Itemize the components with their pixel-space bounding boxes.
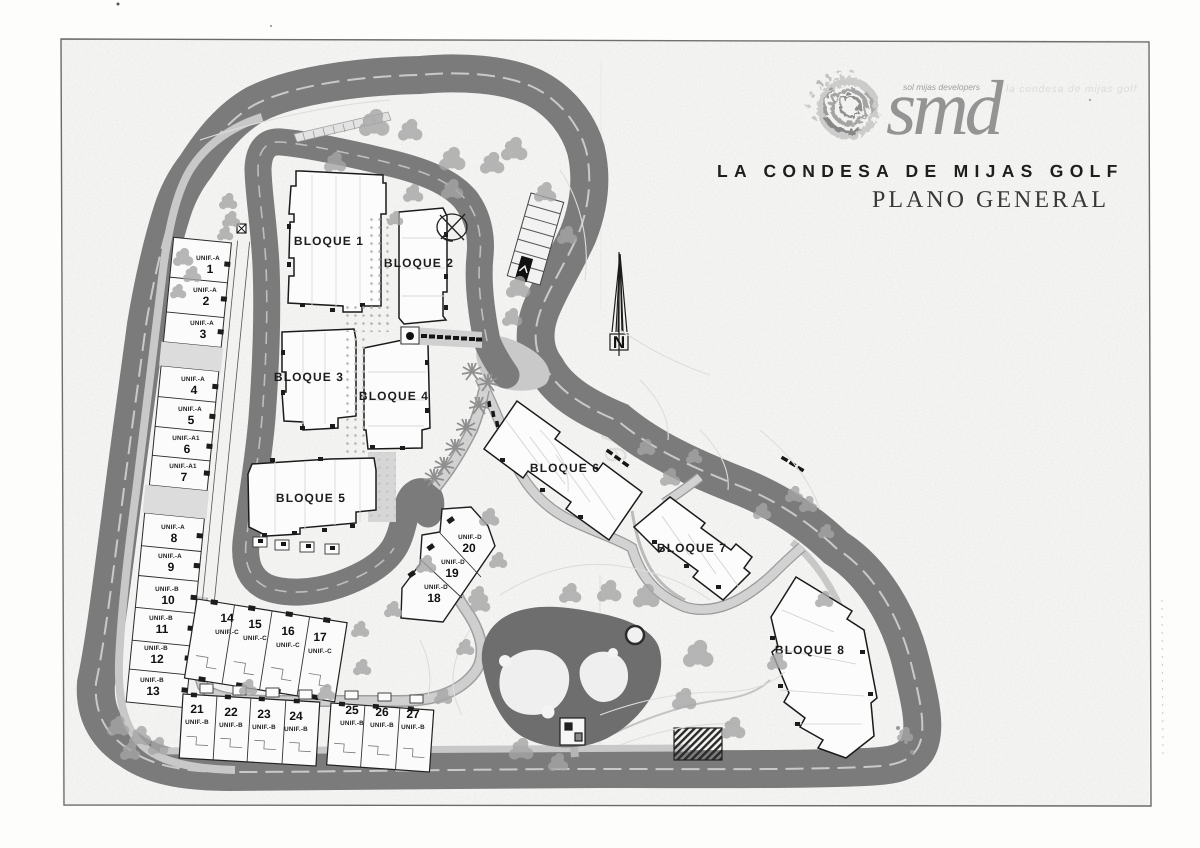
- svg-text:11: 11: [156, 622, 169, 636]
- svg-text:UNIF.-B: UNIF.-B: [144, 645, 168, 652]
- svg-text:UNIF.-D: UNIF.-D: [424, 584, 448, 591]
- svg-text:UNIF.-B: UNIF.-B: [155, 586, 179, 593]
- svg-text:UNIF.-A1: UNIF.-A1: [172, 435, 200, 442]
- svg-text:UNIF.-B: UNIF.-B: [401, 724, 425, 731]
- svg-text:26: 26: [375, 705, 389, 719]
- svg-text:19: 19: [445, 566, 459, 580]
- svg-text:13: 13: [146, 684, 160, 698]
- svg-text:smd: smd: [886, 64, 1005, 151]
- svg-text:3: 3: [200, 327, 207, 341]
- svg-text:UNIF.-C: UNIF.-C: [308, 648, 332, 655]
- svg-text:UNIF.-B: UNIF.-B: [185, 719, 209, 726]
- svg-text:20: 20: [462, 541, 476, 555]
- svg-text:BLOQUE 4: BLOQUE 4: [359, 389, 429, 403]
- svg-text:UNIF.-D: UNIF.-D: [441, 559, 465, 566]
- svg-text:4: 4: [191, 383, 198, 397]
- svg-text:UNIF.-B: UNIF.-B: [149, 615, 173, 622]
- svg-text:UNIF.-A1: UNIF.-A1: [169, 463, 197, 470]
- svg-text:UNIF.-A: UNIF.-A: [196, 255, 220, 262]
- svg-text:PLANO GENERAL: PLANO GENERAL: [872, 187, 1109, 213]
- svg-text:23: 23: [257, 707, 271, 721]
- svg-text:25: 25: [345, 703, 359, 717]
- svg-text:UNIF.-B: UNIF.-B: [370, 722, 394, 729]
- svg-text:17: 17: [313, 630, 327, 644]
- svg-text:BLOQUE 2: BLOQUE 2: [384, 256, 454, 270]
- svg-text:BLOQUE 5: BLOQUE 5: [276, 491, 346, 505]
- svg-text:UNIF.-A: UNIF.-A: [178, 406, 202, 413]
- svg-text:5: 5: [188, 413, 195, 427]
- svg-text:16: 16: [281, 624, 295, 638]
- svg-text:UNIF.-B: UNIF.-B: [284, 726, 308, 733]
- svg-text:UNIF.-B: UNIF.-B: [219, 722, 243, 729]
- svg-text:24: 24: [289, 709, 303, 723]
- svg-text:6: 6: [184, 442, 191, 456]
- svg-text:10: 10: [161, 593, 175, 607]
- svg-text:UNIF.-B: UNIF.-B: [140, 677, 164, 684]
- svg-text:12: 12: [150, 652, 164, 666]
- svg-text:la condesa de mijas golf: la condesa de mijas golf: [1006, 84, 1138, 95]
- svg-text:18: 18: [427, 591, 441, 605]
- svg-text:BLOQUE 1: BLOQUE 1: [294, 234, 364, 248]
- svg-text:sol mijas developers: sol mijas developers: [903, 82, 981, 92]
- svg-text:UNIF.-A: UNIF.-A: [158, 553, 182, 560]
- svg-text:N: N: [613, 333, 625, 352]
- svg-text:UNIF.-A: UNIF.-A: [190, 320, 214, 327]
- svg-text:BLOQUE 8: BLOQUE 8: [775, 643, 845, 657]
- svg-text:27: 27: [406, 707, 420, 721]
- svg-text:1: 1: [207, 262, 214, 276]
- svg-text:UNIF.-B: UNIF.-B: [252, 724, 276, 731]
- svg-text:UNIF.-A: UNIF.-A: [161, 524, 185, 531]
- svg-text:22: 22: [224, 705, 238, 719]
- svg-text:UNIF.-B: UNIF.-B: [340, 720, 364, 727]
- svg-text:UNIF.-A: UNIF.-A: [181, 376, 205, 383]
- svg-text:21: 21: [190, 702, 204, 716]
- svg-text:7: 7: [181, 470, 188, 484]
- svg-text:9: 9: [168, 560, 175, 574]
- svg-text:2: 2: [203, 294, 210, 308]
- svg-text:8: 8: [171, 531, 178, 545]
- svg-text:LA CONDESA DE MIJAS GOLF: LA CONDESA DE MIJAS GOLF: [717, 161, 1124, 181]
- svg-text:15: 15: [248, 617, 262, 631]
- svg-text:UNIF.-C: UNIF.-C: [215, 629, 239, 636]
- svg-text:UNIF.-C: UNIF.-C: [243, 635, 267, 642]
- svg-text:UNIF.-C: UNIF.-C: [276, 642, 300, 649]
- svg-text:14: 14: [220, 611, 234, 625]
- svg-text:BLOQUE 3: BLOQUE 3: [274, 370, 344, 384]
- svg-text:UNIF.-D: UNIF.-D: [458, 534, 482, 541]
- svg-text:BLOQUE 7: BLOQUE 7: [657, 541, 727, 555]
- svg-text:UNIF.-A: UNIF.-A: [193, 287, 217, 294]
